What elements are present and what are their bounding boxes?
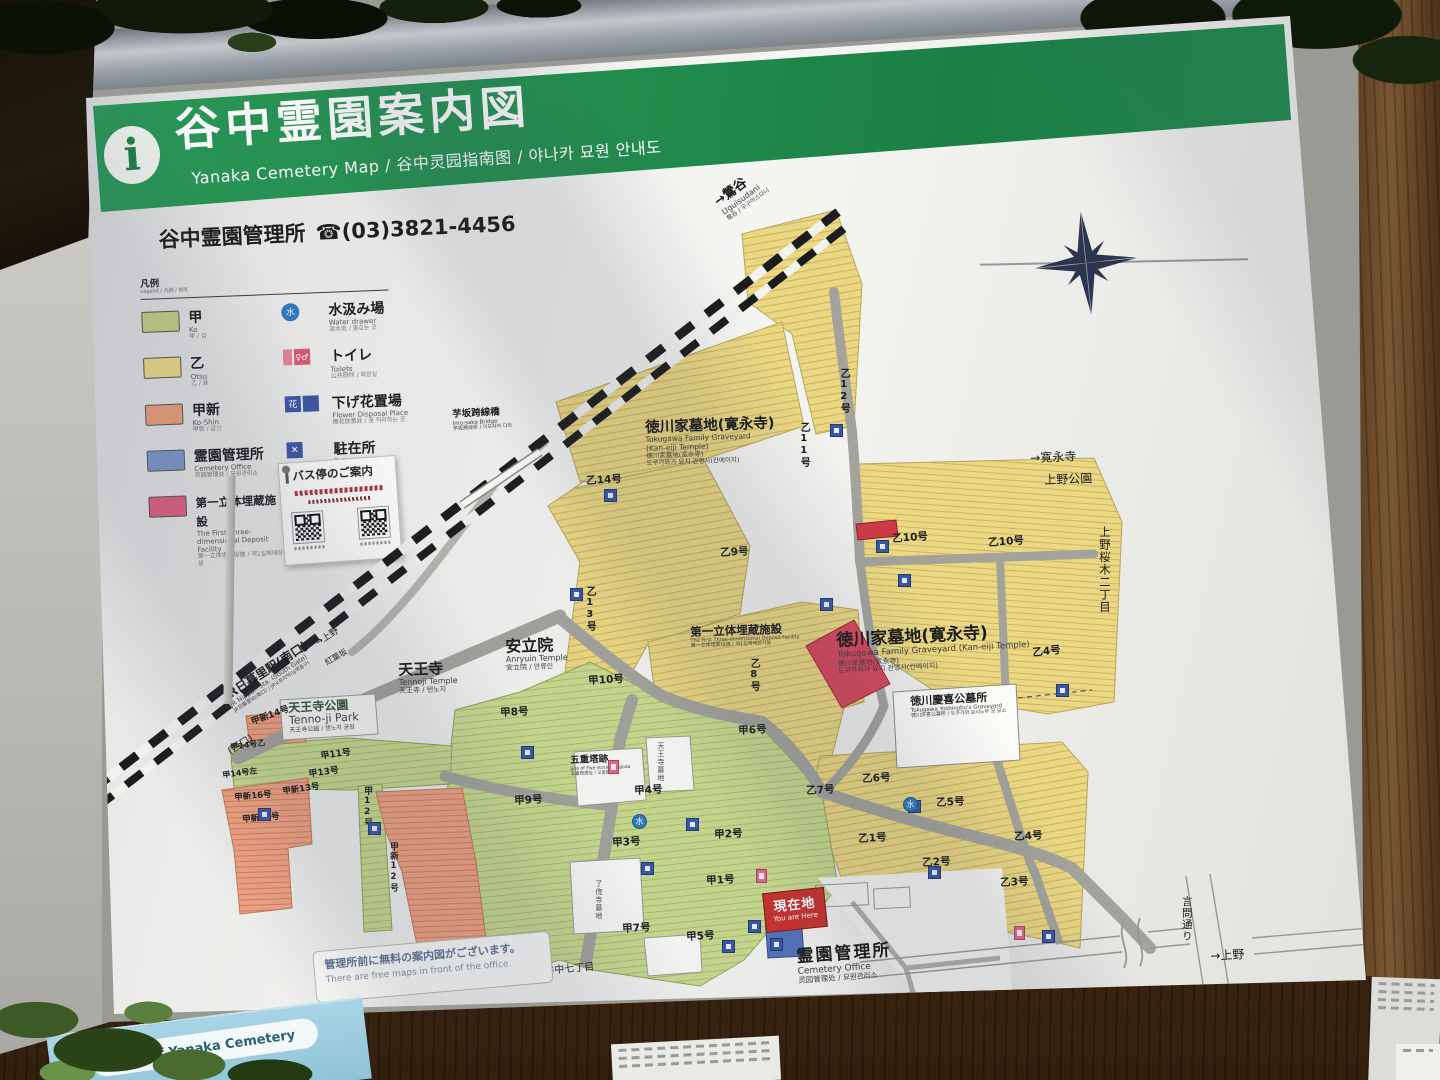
blue-facility-icon (258, 808, 271, 821)
blue-facility-icon (722, 940, 735, 953)
map-label: 甲13号 (308, 766, 340, 780)
map-label: 徳川慶喜公墓所Tokugawa Yoshinobu's Graveyard德川庆… (910, 691, 1006, 720)
map-label: 甲新13号 (282, 783, 320, 798)
map-label: 天王寺Tennoji Temple天王寺 / 텐노지 (398, 660, 458, 696)
map-label: 言問通り (1180, 896, 1192, 942)
secondary-sign-label: Map of Yanaka Cemetery (114, 1027, 297, 1067)
map-label: 甲7号 (622, 923, 651, 936)
map-label: →鶯谷Uguisudani莺谷 / 우구이스다니 (712, 168, 771, 222)
pink-facility-icon (608, 760, 619, 774)
blue-facility-icon (928, 866, 941, 879)
map-label: 甲14号左 (222, 767, 258, 781)
map-label: 甲新12号 (388, 842, 398, 893)
blue-facility-icon (898, 574, 911, 587)
map-label: 乙13号 (584, 586, 595, 632)
map-label: 乙9号 (720, 547, 749, 560)
you-are-here-marker: 現在地 You are Here (762, 887, 828, 933)
map-label: 五重塔跡Site of Five-storied Pagoda五重塔遗址 / 오… (570, 754, 631, 777)
map-label: 甲新16号 (234, 791, 272, 804)
paper-scrap (1396, 1044, 1440, 1080)
blue-facility-icon (770, 938, 783, 951)
map-label: 甲14号乙 (230, 739, 266, 753)
map-label: 天王寺公園Tenno-ji Park天王寺公园 / 텐노지 공원 (288, 698, 359, 734)
map-label: 霊園管理所Cemetery Office灵园管理处 / 묘원관리소 (796, 941, 893, 985)
map-labels-layer: →鶯谷Uguisudani莺谷 / 우구이스다니芋坂跨線橋Imo-saka Br… (0, 0, 1440, 1080)
map-label: 乙11号 (798, 422, 809, 468)
map-label: 乙6号 (862, 773, 891, 786)
map-label: 甲8号 (500, 707, 529, 720)
water-point-icon: 水 (903, 797, 918, 812)
sign-board: i 谷中霊園案内図 Yanaka Cemetery Map / 谷中灵园指南图 … (0, 0, 1440, 1080)
blue-facility-icon (748, 920, 761, 933)
map-label: 乙3号 (1000, 877, 1029, 890)
blue-facility-icon (820, 598, 833, 611)
map-label: 乙8号 (748, 658, 759, 692)
map-label: 乙4号 (1014, 831, 1043, 844)
wall-left (0, 210, 102, 1080)
blue-facility-icon (1056, 684, 1069, 697)
blue-facility-icon (830, 424, 843, 437)
map-label: 甲6号 (738, 725, 767, 738)
blue-facility-icon (686, 818, 699, 831)
map-label: 乙7号 (806, 785, 835, 798)
map-label: 乙12号 (838, 368, 849, 414)
map-label: 紅葉坂 (324, 648, 349, 668)
map-label: 甲4号 (634, 785, 663, 798)
blue-facility-icon (368, 822, 381, 835)
blue-facility-icon (570, 588, 583, 601)
map-label: 乙4号 (1032, 645, 1061, 660)
map-label: 甲10号 (588, 674, 624, 688)
blue-facility-icon (604, 489, 617, 502)
map-label: 乙10号 (988, 536, 1024, 550)
map-label: 了俒寺墓地 (594, 880, 602, 920)
map-label: 乙1号 (858, 833, 887, 846)
map-label: 乙5号 (936, 797, 965, 810)
map-label: 乙10号 (892, 532, 928, 546)
blue-facility-icon (1042, 930, 1055, 943)
map-label: 徳川家墓地(寛永寺)Tokugawa Family Graveyard(Kan-… (645, 415, 776, 467)
pink-facility-icon (756, 869, 767, 883)
map-label: 上野桜木二丁目 (1098, 526, 1111, 614)
wooden-frame-right (1348, 0, 1440, 1080)
map-label: 甲11号 (320, 748, 352, 762)
map-label: 甲3号 (612, 837, 641, 850)
map-label: 第一立体埋蔵施設The First Three-dimensional Depo… (690, 622, 800, 650)
map-label: 芋坂跨線橋Imo-saka Bridge芋坂跨线桥 / 이모자카 다리 (452, 407, 512, 432)
map-label: 天王寺墓地 (656, 742, 664, 782)
blue-facility-icon (641, 862, 654, 875)
water-point-icon: 水 (632, 814, 647, 829)
map-label: 徳川家墓地(寛永寺)Tokugawa Family Graveyard (Kan… (836, 622, 1031, 676)
pink-facility-icon (1014, 926, 1025, 940)
map-label: 甲5号 (686, 931, 715, 944)
blue-facility-icon (521, 746, 534, 759)
blue-facility-icon (876, 540, 889, 553)
map-label: →上野 (1210, 948, 1245, 963)
map-label: →上野 (314, 626, 341, 648)
map-label: 甲1号 (706, 875, 735, 888)
paper-scrap (611, 1036, 781, 1080)
map-label: 甲2号 (714, 829, 743, 842)
map-label: 甲9号 (514, 795, 543, 808)
photo-of-sign: i 谷中霊園案内図 Yanaka Cemetery Map / 谷中灵园指南图 … (0, 0, 1440, 1080)
map-label: 乙14号 (586, 474, 622, 488)
map-label: 安立院Anryuin Temple安立院 / 안류인 (505, 636, 568, 673)
map-label: 上野公園 (1044, 472, 1092, 487)
map-label: 甲新14号 (250, 704, 291, 727)
map-label: →寛永寺 (1030, 450, 1077, 465)
wooden-post-left (0, 0, 96, 270)
